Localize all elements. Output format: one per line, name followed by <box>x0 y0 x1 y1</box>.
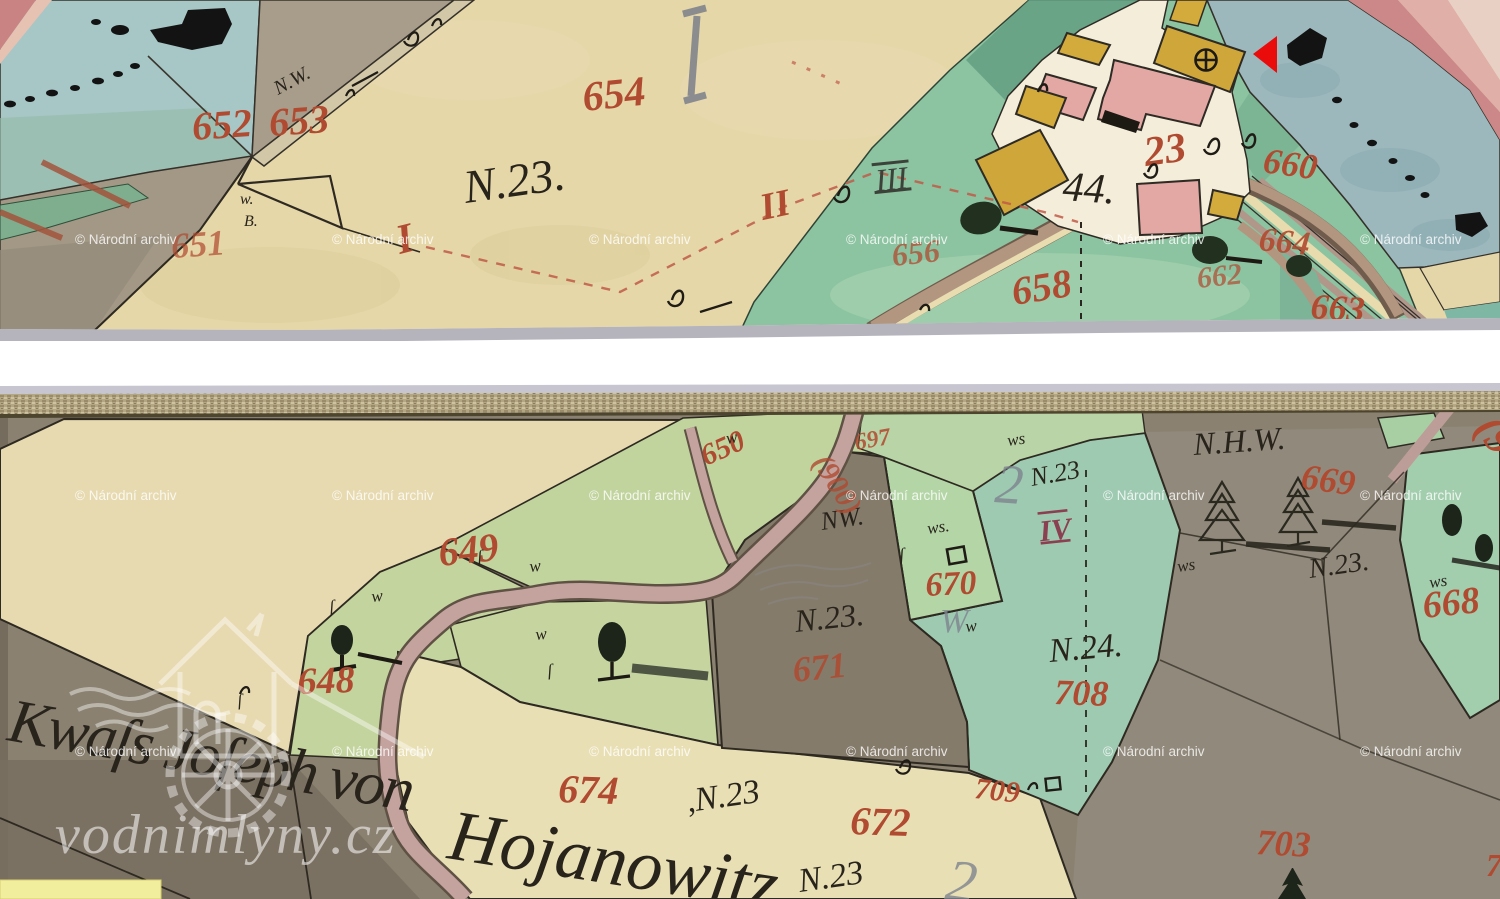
svg-text:653: 653 <box>267 96 330 145</box>
svg-text:© Národní archiv: © Národní archiv <box>1103 488 1205 503</box>
svg-text:23: 23 <box>1140 125 1189 177</box>
svg-text:ws: ws <box>1428 571 1449 592</box>
svg-text:© Národní archiv: © Národní archiv <box>589 488 691 503</box>
svg-text:658: 658 <box>1008 260 1074 314</box>
svg-text:© Národní archiv: © Národní archiv <box>332 232 434 247</box>
svg-text:© Národní archiv: © Národní archiv <box>332 488 434 503</box>
svg-text:660: 660 <box>1261 140 1320 187</box>
svg-text:© Národní archiv: © Národní archiv <box>1360 488 1462 503</box>
svg-text:N.24.: N.24. <box>1046 627 1124 670</box>
svg-text:w.: w. <box>240 191 253 208</box>
svg-text:© Národní archiv: © Národní archiv <box>1360 232 1462 247</box>
svg-text:N.H.W.: N.H.W. <box>1191 420 1286 462</box>
svg-text:669: 669 <box>1299 456 1358 503</box>
svg-text:B.: B. <box>244 213 258 230</box>
svg-text:7: 7 <box>1486 847 1500 883</box>
svg-text:2: 2 <box>993 453 1025 517</box>
svg-text:670: 670 <box>924 564 977 604</box>
svg-text:© Národní archiv: © Národní archiv <box>75 744 177 759</box>
svg-text:703: 703 <box>1256 822 1312 865</box>
svg-text:© Národní archiv: © Národní archiv <box>846 488 948 503</box>
svg-text:672: 672 <box>850 798 912 845</box>
svg-text:ws: ws <box>1176 555 1197 576</box>
svg-text:662: 662 <box>1195 257 1243 295</box>
svg-text:44.: 44. <box>1061 164 1117 214</box>
svg-text:649: 649 <box>436 524 500 575</box>
svg-text:ws: ws <box>1006 429 1027 450</box>
svg-text:709: 709 <box>973 772 1021 810</box>
svg-text:N.23.: N.23. <box>792 596 866 639</box>
svg-text:671: 671 <box>791 645 849 690</box>
svg-text:© Národní archiv: © Národní archiv <box>846 232 948 247</box>
svg-text:© Národní archiv: © Národní archiv <box>332 744 434 759</box>
svg-text:© Národní archiv: © Národní archiv <box>1103 744 1205 759</box>
svg-text:© Národní archiv: © Národní archiv <box>1103 232 1205 247</box>
svg-text:654: 654 <box>580 69 647 121</box>
svg-text:© Národní archiv: © Národní archiv <box>1360 744 1462 759</box>
svg-text:651: 651 <box>170 222 227 266</box>
svg-text:674: 674 <box>558 766 620 813</box>
svg-text:ws.: ws. <box>926 516 951 538</box>
svg-text:© Národní archiv: © Národní archiv <box>846 744 948 759</box>
svg-text:vodnimlyny.cz: vodnimlyny.cz <box>55 804 397 866</box>
svg-text:664: 664 <box>1257 221 1312 263</box>
svg-text:© Národní archiv: © Národní archiv <box>589 744 691 759</box>
svg-text:© Národní archiv: © Národní archiv <box>75 232 177 247</box>
svg-text:652: 652 <box>190 100 253 149</box>
svg-text:© Národní archiv: © Národní archiv <box>75 488 177 503</box>
svg-text:708: 708 <box>1054 672 1109 714</box>
svg-text:© Národní archiv: © Národní archiv <box>589 232 691 247</box>
svg-text:648: 648 <box>297 659 355 703</box>
